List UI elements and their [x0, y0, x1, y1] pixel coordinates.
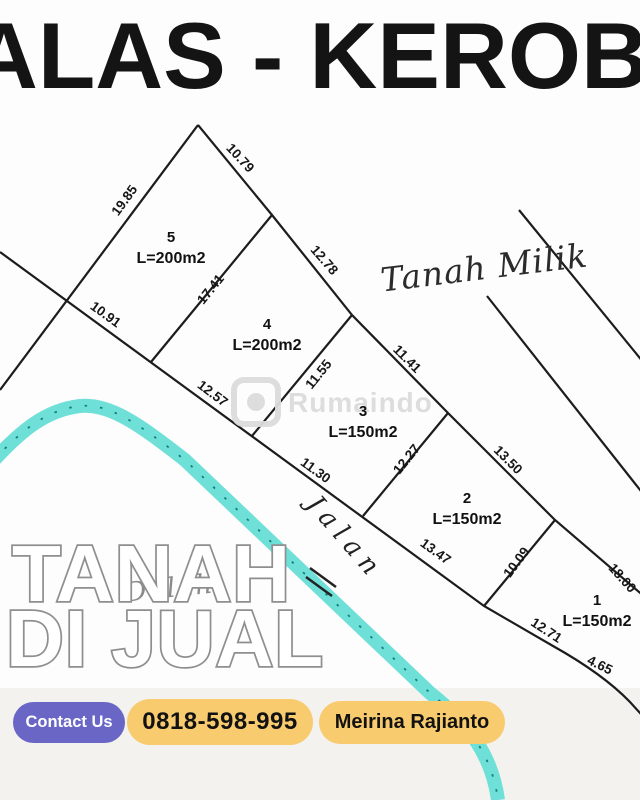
plot-area-label: L=200m2	[233, 337, 302, 354]
dimension-label: 11.30	[298, 455, 334, 487]
contact-us-label: Contact Us	[25, 713, 112, 732]
dimension-label: 18.00	[605, 560, 639, 595]
watermark: Rumaindo	[234, 380, 433, 424]
plot-number-label: 3	[359, 403, 367, 420]
parcel-owner-label: Tanah Milik	[379, 235, 590, 299]
plot-number-label: 1	[593, 592, 601, 609]
page-title: ALAS - KEROB	[0, 2, 640, 110]
agent-name: Meirina Rajianto	[335, 711, 489, 734]
agent-name-button[interactable]: Meirina Rajianto	[319, 701, 505, 744]
dimension-label: 4.65	[585, 652, 616, 677]
dimension-label: 10.91	[88, 298, 125, 330]
neighbour-line-1	[519, 210, 640, 368]
plot-number-label: 4	[263, 316, 272, 333]
sale-overlay-line2: DI JUAL	[6, 594, 324, 683]
site-plan: Dalah Tanah Milik Jalan Rumaindo 10.7919…	[0, 0, 640, 800]
dimension-label: 12.57	[195, 377, 231, 409]
phone-button[interactable]: 0818-598-995	[127, 699, 313, 745]
dimension-label: 10.79	[223, 140, 257, 175]
plot-area-label: L=200m2	[137, 250, 206, 267]
dimension-label: 12.78	[308, 242, 342, 278]
plot-area-label: L=150m2	[563, 613, 632, 630]
flyer: Dalah Tanah Milik Jalan Rumaindo 10.7919…	[0, 0, 640, 800]
watermark-icon-dot	[247, 393, 265, 411]
plot-area-label: L=150m2	[433, 511, 502, 528]
dimension-label: 19.85	[108, 182, 140, 219]
dimension-label: 10.09	[500, 544, 532, 580]
plot-number-label: 5	[167, 229, 175, 246]
phone-number: 0818-598-995	[142, 708, 297, 736]
sale-overlay: TANAH DI JUAL	[6, 529, 324, 683]
plot-number-label: 2	[463, 490, 471, 507]
contact-us-button[interactable]: Contact Us	[13, 702, 125, 743]
plot-area-label: L=150m2	[329, 424, 398, 441]
dimension-label: 12.27	[390, 441, 423, 477]
